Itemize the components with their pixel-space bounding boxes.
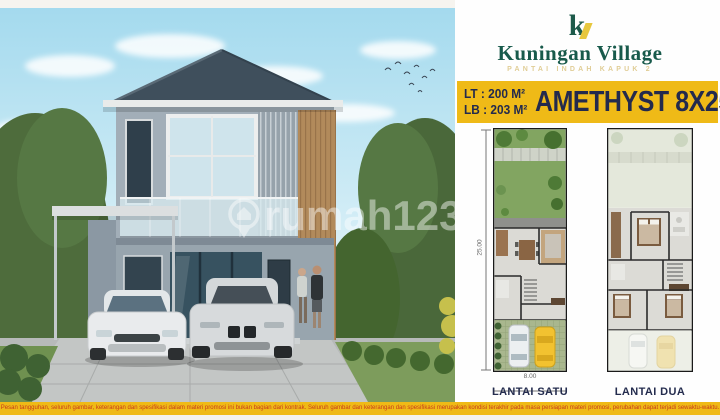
upper-left-window [126, 120, 152, 204]
plan2-bed-left [613, 294, 631, 318]
disclaimer-text: Pesan tangguhan, seluruh gambar, keteran… [1, 405, 719, 411]
info-panel: k Kuningan Village PANTAI INDAH KAPUK 2 … [455, 0, 720, 420]
house-photo: rumah123 [0, 8, 455, 402]
watermark: rumah123 [230, 192, 455, 239]
land-area: LT : 200 M² [464, 86, 527, 103]
height-dimension-label: 25.00 [477, 233, 484, 263]
plan2-bed-right [665, 294, 683, 318]
plan2-roof-garden [609, 130, 692, 208]
property-flyer: rumah123 k Kuningan Village PANTAI INDAH… [0, 0, 720, 420]
brand-name: Kuningan Village [455, 41, 705, 66]
yellow-shrub [439, 297, 455, 354]
plan1-terrace [495, 218, 566, 228]
plan1-garden [495, 129, 566, 219]
plan2-ghost-carport [609, 330, 692, 371]
plan2-interior [609, 208, 694, 330]
brand-tagline: PANTAI INDAH KAPUK 2 [455, 66, 705, 73]
plan1-carport [495, 320, 566, 371]
disclaimer-bar: Pesan tangguhan, seluruh gambar, keteran… [0, 402, 720, 415]
floorplan-2-drawing [607, 128, 693, 372]
house-render: rumah123 [0, 8, 455, 402]
floorplan-2 [607, 128, 693, 372]
floor2-label: LANTAI DUA [595, 386, 705, 398]
title-banner: LT : 200 M² LB : 203 M² AMETHYST 8X25 [457, 81, 718, 123]
floorplan-1-drawing [493, 128, 567, 372]
floor1-label: LANTAI SATU [475, 386, 585, 398]
building-area: LB : 203 M² [464, 102, 527, 119]
plan1-car-white [509, 325, 529, 367]
width-dimension-label: 8.00 [493, 373, 567, 381]
fascia [103, 100, 343, 107]
floorplan-1 [493, 128, 567, 372]
height-dimension: 25.00 [477, 128, 491, 372]
product-title: AMETHYST 8X25 [535, 86, 720, 119]
plan2-master-bed [637, 218, 661, 246]
plan1-car-yellow [535, 327, 555, 367]
area-specs: LT : 200 M² LB : 203 M² [457, 86, 531, 119]
bottom-strip [0, 415, 720, 420]
watermark-text: rumah123 [264, 192, 455, 239]
plan1-interior [495, 228, 567, 320]
